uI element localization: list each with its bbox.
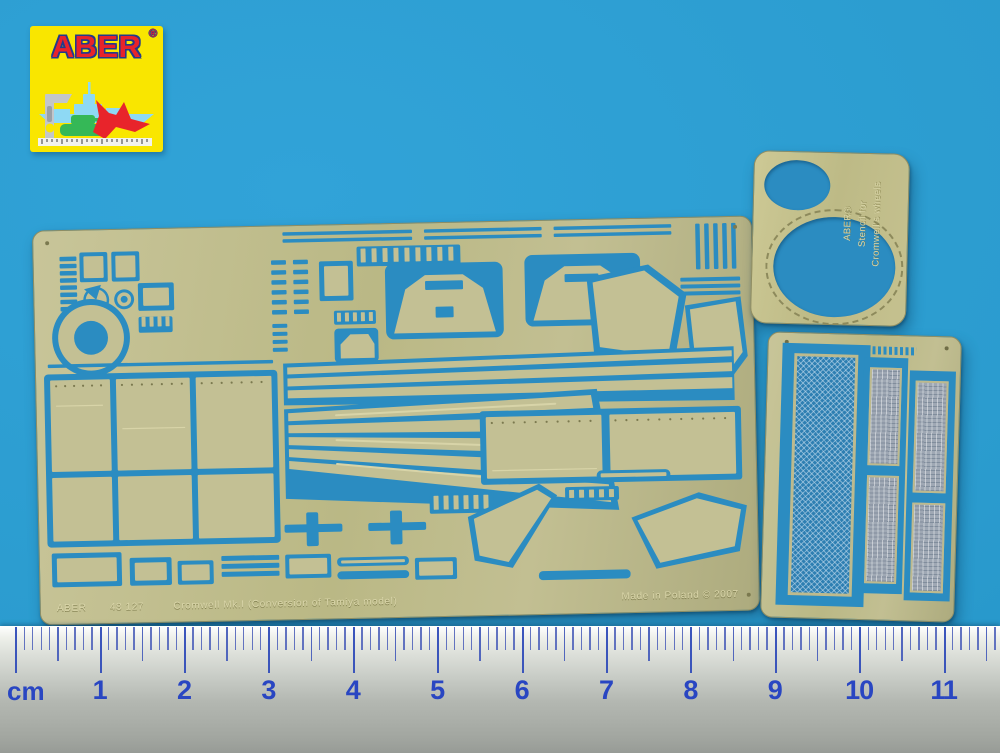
- ruler-tick: [614, 627, 615, 650]
- ruler-tick: [395, 627, 396, 661]
- fret-locating-dot: [945, 346, 949, 350]
- ruler-tick: [868, 627, 869, 650]
- ruler-tick: [463, 627, 464, 650]
- ruler-tick: [327, 627, 328, 650]
- ruler-tick: [589, 627, 590, 650]
- ruler-number: 5: [430, 675, 444, 706]
- grey-mesh-panel: [913, 380, 949, 493]
- ruler-tick: [918, 627, 919, 650]
- product-photo: ABER ®: [0, 0, 1000, 753]
- ruler-tick: [623, 627, 624, 650]
- fret-brand-text: ABER: [57, 603, 87, 615]
- ruler-tick: [437, 627, 439, 673]
- ruler-tick: [522, 627, 524, 673]
- ruler-tick: [674, 627, 675, 650]
- ruler-tick: [547, 627, 548, 650]
- stencil-line-3: Cromwell's wheels: [869, 158, 887, 290]
- ruler-tick: [479, 627, 480, 661]
- ruler-tick: [851, 627, 852, 650]
- grey-mesh-panel: [867, 367, 902, 466]
- ruler-tick: [133, 627, 134, 650]
- ruler-tick: [893, 627, 894, 650]
- ruler-tick: [513, 627, 514, 650]
- ruler-tick: [49, 627, 50, 650]
- ruler-tick: [859, 627, 861, 673]
- ruler-tick: [733, 627, 734, 661]
- ruler-tick: [699, 627, 700, 650]
- ruler-tick: [758, 627, 759, 650]
- ruler-tick: [834, 627, 835, 650]
- ruler-tick: [572, 627, 573, 650]
- large-blue-mesh-panel: [788, 353, 859, 597]
- ruler-tick: [226, 627, 227, 661]
- ruler-tick: [809, 627, 810, 650]
- ruler-tick: [488, 627, 489, 650]
- ruler-tick: [167, 627, 168, 650]
- registered-trademark-symbol: ®: [149, 28, 157, 40]
- ruler-tick: [15, 627, 17, 673]
- ruler-tick: [302, 627, 303, 650]
- ruler-tick: [311, 627, 312, 661]
- ruler-tick: [454, 627, 455, 650]
- fret-set-number: 48 127: [110, 601, 144, 613]
- ruler-tick: [960, 627, 961, 650]
- ruler-tick: [555, 627, 556, 650]
- ruler-tick: [581, 627, 582, 650]
- ruler-tick: [598, 627, 599, 650]
- ruler-tick: [935, 627, 936, 650]
- ruler-tick: [125, 627, 126, 650]
- ruler-tick: [800, 627, 801, 650]
- ruler-tick: [370, 627, 371, 650]
- ruler-tick: [57, 627, 58, 661]
- ruler-tick: [235, 627, 236, 650]
- ruler-tick: [209, 627, 210, 650]
- ruler-unit-label: cm: [7, 676, 45, 707]
- ruler-tick: [412, 627, 413, 650]
- ruler-tick: [876, 627, 877, 650]
- ruler-tick: [142, 627, 143, 661]
- ruler-tick: [285, 627, 286, 650]
- ruler-number: 8: [683, 675, 697, 706]
- ruler-tick: [201, 627, 202, 650]
- ruler-tick: [344, 627, 345, 650]
- aber-logo-wordmark: ABER: [30, 29, 163, 65]
- ruler-tick: [24, 627, 25, 650]
- ruler-number: 3: [261, 675, 275, 706]
- ruler-tick: [749, 627, 750, 650]
- ruler-tick: [41, 627, 42, 650]
- ruler-tick: [842, 627, 843, 650]
- ruler-tick: [260, 627, 261, 650]
- ruler-tick: [74, 627, 75, 650]
- ruler-tick: [766, 627, 767, 650]
- ruler-tick: [294, 627, 295, 650]
- ruler-tick: [792, 627, 793, 650]
- ruler-tick: [150, 627, 151, 650]
- ruler-tick: [420, 627, 421, 650]
- ruler-tick: [690, 627, 692, 673]
- ruler-tick: [538, 627, 539, 650]
- ruler-tick: [885, 627, 886, 650]
- ruler-tick: [783, 627, 784, 650]
- ruler-tick: [446, 627, 447, 650]
- ruler-tick: [657, 627, 658, 650]
- ruler-tick: [817, 627, 818, 661]
- stencil-inscription: ABER® Stencil for Cromwell's wheels: [840, 157, 903, 290]
- ruler-number: 4: [346, 675, 360, 706]
- ruler-tick: [606, 627, 608, 673]
- logo-ruler-icon: [38, 138, 152, 146]
- ruler-tick: [83, 627, 84, 650]
- aber-logo: ABER ®: [30, 26, 163, 152]
- ruler-number: 10: [845, 675, 873, 706]
- ruler-tick: [243, 627, 244, 650]
- ruler-tick: [640, 627, 641, 650]
- ruler-tick: [116, 627, 117, 650]
- ruler-tick: [825, 627, 826, 650]
- small-slot-row: [872, 346, 916, 355]
- ruler-tick: [986, 627, 987, 661]
- ruler-tick: [530, 627, 531, 650]
- wheel-stencil-plate: ABER® Stencil for Cromwell's wheels: [750, 150, 910, 327]
- ruler-tick: [218, 627, 219, 650]
- ruler-tick: [901, 627, 902, 661]
- ruler-tick: [564, 627, 565, 661]
- ruler-tick: [403, 627, 404, 650]
- ruler-tick: [707, 627, 708, 650]
- main-etched-fret: ABER 48 127 Cromwell Mk.I (Conversion of…: [32, 216, 760, 626]
- ruler-tick: [665, 627, 666, 650]
- mesh-grille-fret: [760, 331, 962, 622]
- ruler-tick: [977, 627, 978, 650]
- ruler-tick: [387, 627, 388, 650]
- ruler-number: 9: [768, 675, 782, 706]
- ruler-tick: [944, 627, 946, 673]
- ruler-tick: [471, 627, 472, 650]
- ruler-tick: [775, 627, 777, 673]
- ruler-tick: [496, 627, 497, 650]
- logo-artwork: [36, 66, 157, 148]
- ruler-tick: [336, 627, 337, 650]
- ruler-number: 1: [93, 675, 107, 706]
- ruler-tick: [378, 627, 379, 650]
- grey-mesh-panel: [910, 502, 946, 593]
- ruler-tick: [910, 627, 911, 650]
- ruler-tick: [741, 627, 742, 650]
- fret-etched-parts-graphic: [33, 217, 759, 625]
- ruler-number: 11: [930, 675, 957, 706]
- ruler-tick: [100, 627, 102, 673]
- grey-mesh-panel: [864, 475, 899, 584]
- ruler-tick: [682, 627, 683, 650]
- ruler-tick: [952, 627, 953, 650]
- ruler-tick: [505, 627, 506, 650]
- ruler-tick: [724, 627, 725, 650]
- ruler-tick: [716, 627, 717, 650]
- ruler-tick: [252, 627, 253, 650]
- ruler-tick: [108, 627, 109, 650]
- ruler-tick: [927, 627, 928, 650]
- ruler-tick: [32, 627, 33, 650]
- ruler-tick: [184, 627, 186, 673]
- ruler-tick: [159, 627, 160, 650]
- measuring-ruler: cm 1234567891011: [0, 626, 1000, 753]
- ruler-tick: [994, 627, 995, 650]
- ruler-tick: [353, 627, 355, 673]
- ruler-tick: [631, 627, 632, 650]
- ruler-tick: [429, 627, 430, 650]
- stencil-small-cutout: [764, 159, 831, 211]
- ruler-tick: [66, 627, 67, 650]
- ruler-tick: [319, 627, 320, 650]
- ruler-number: 2: [177, 675, 191, 706]
- ruler-tick: [91, 627, 92, 650]
- ruler-tick: [192, 627, 193, 650]
- ruler-tick: [361, 627, 362, 650]
- ruler-number: 7: [599, 675, 613, 706]
- ruler-number: 6: [515, 675, 529, 706]
- ruler-tick: [176, 627, 177, 650]
- ruler-tick: [969, 627, 970, 650]
- ruler-tick: [648, 627, 649, 661]
- ruler-tick: [268, 627, 270, 673]
- ruler-tick: [277, 627, 278, 650]
